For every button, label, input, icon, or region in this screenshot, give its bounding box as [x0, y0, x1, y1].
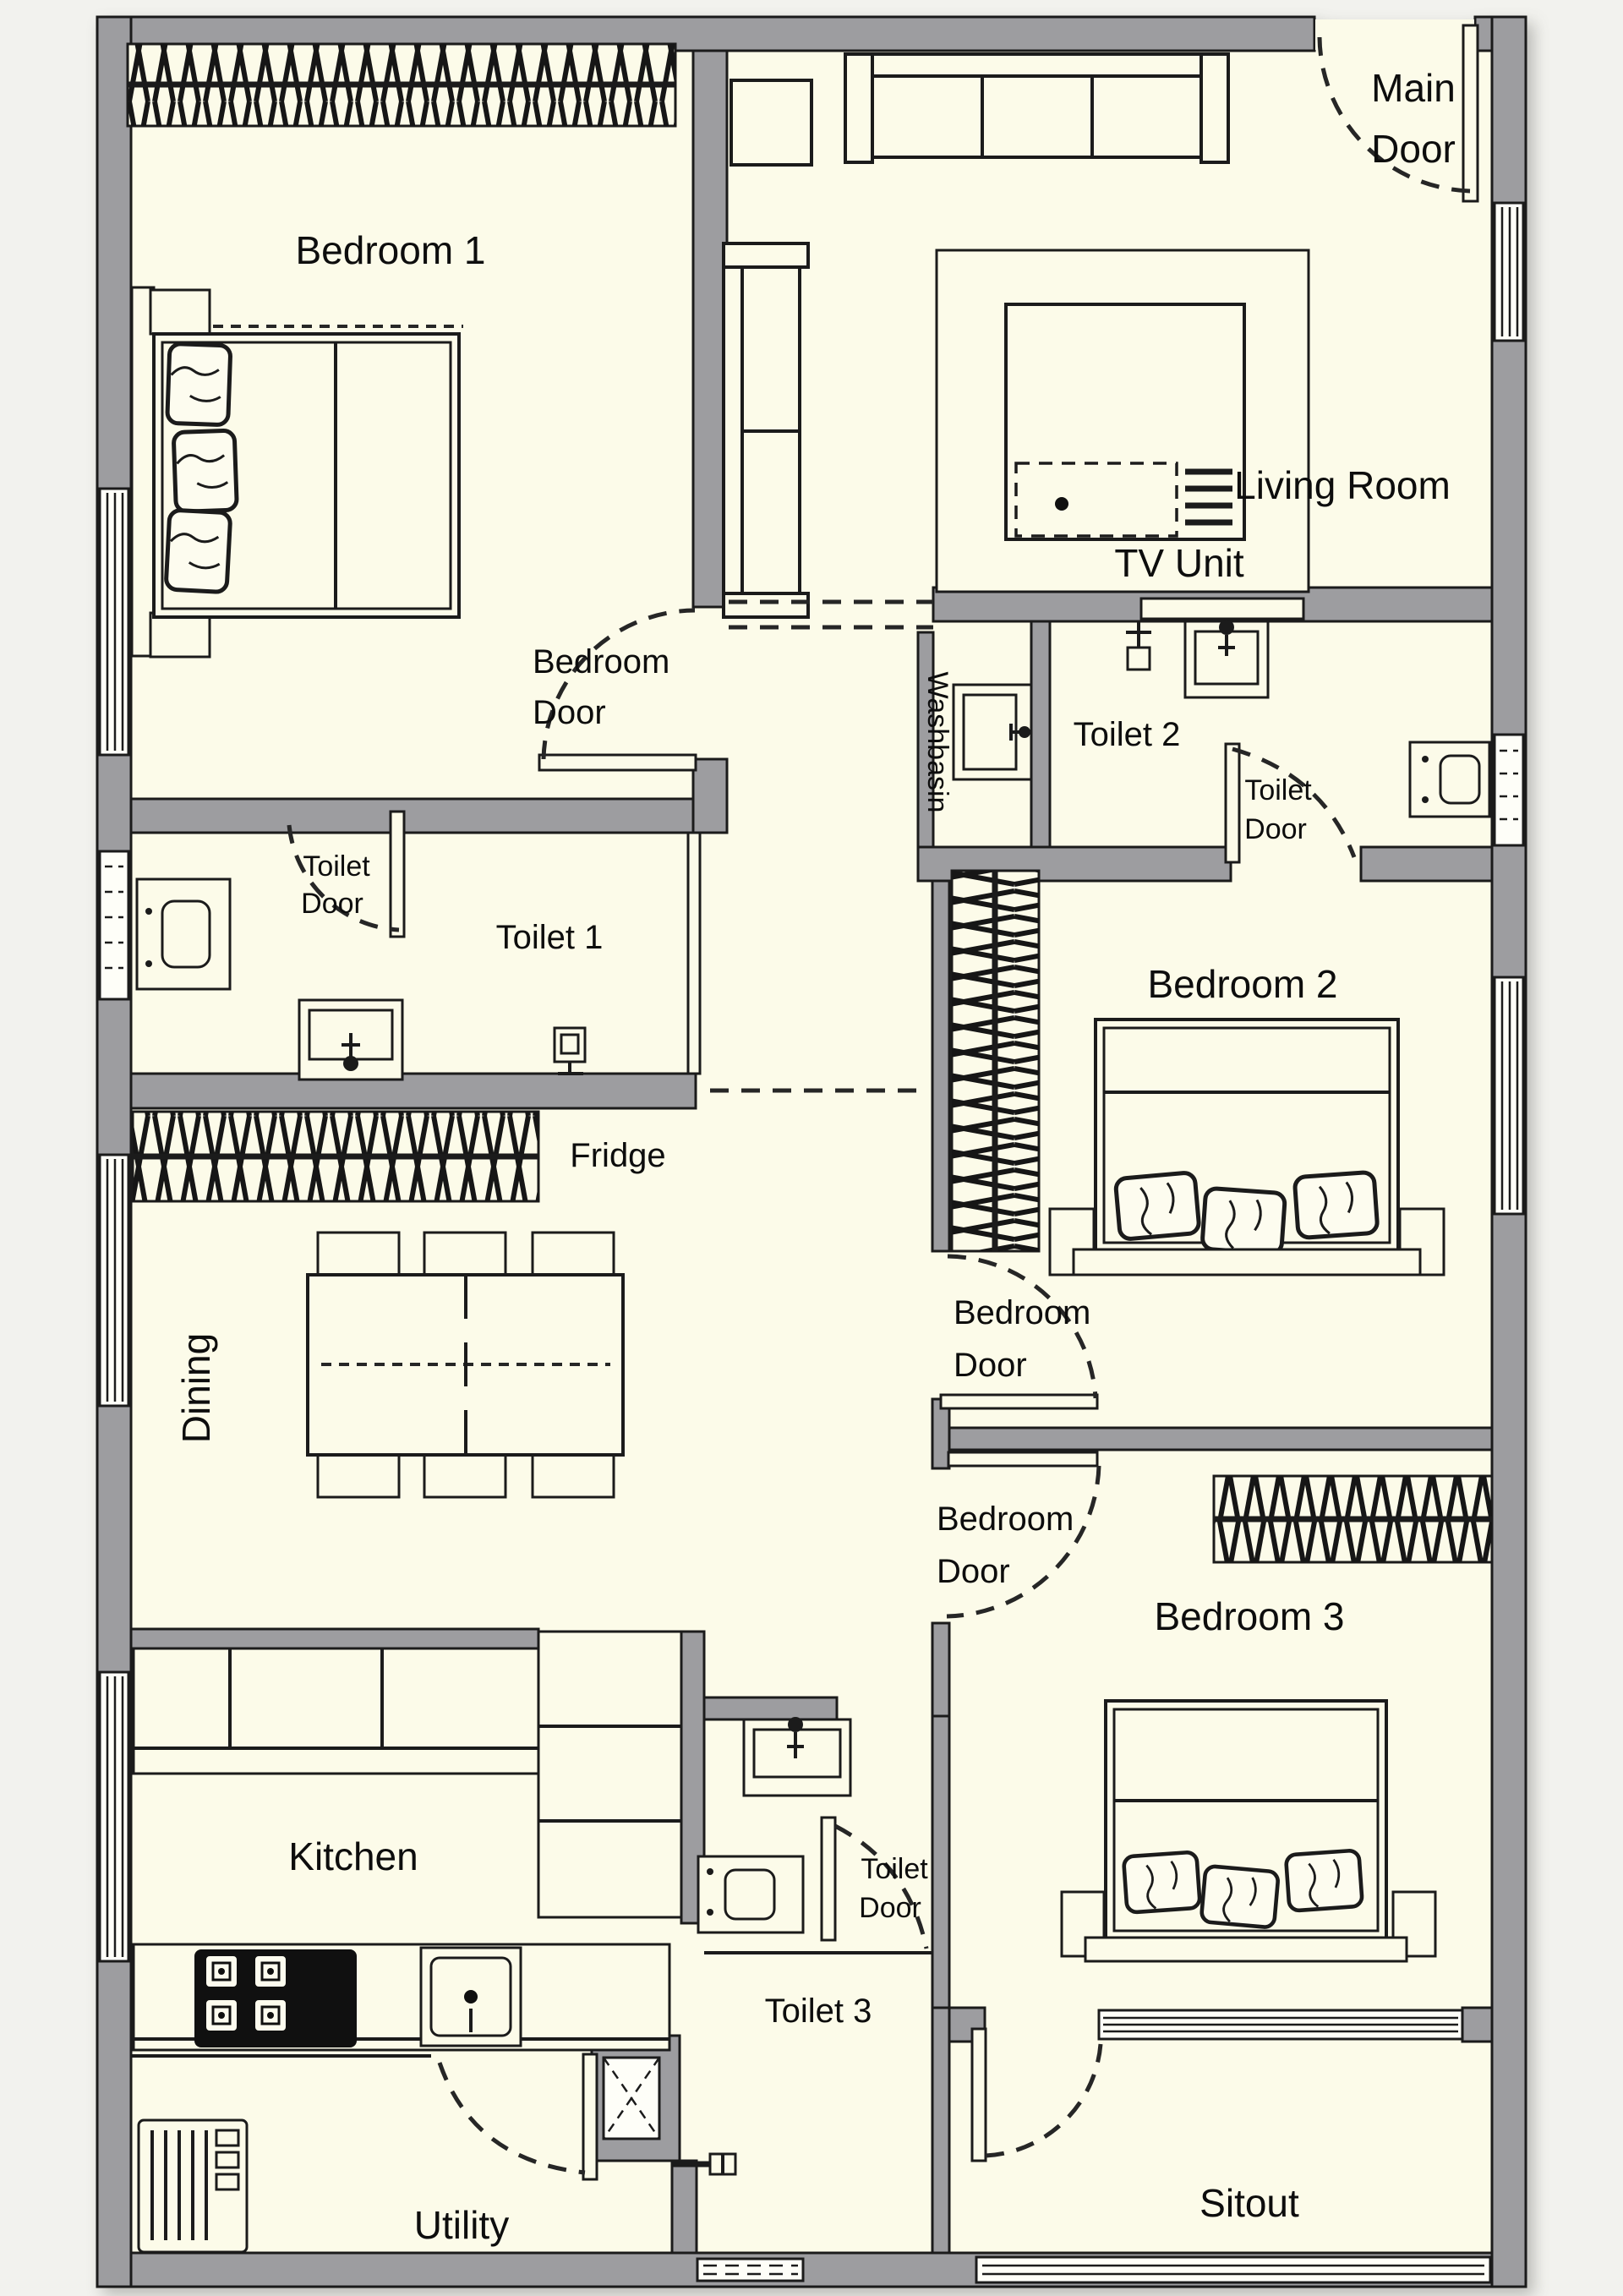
label-toilet2: Toilet 2: [1074, 716, 1181, 753]
window-kitchen-left: [100, 1672, 128, 1961]
kitchen-stove: [194, 1949, 357, 2047]
label-toilet3-door-1: Toilet: [861, 1853, 928, 1885]
bed-bedroom2: [1050, 1020, 1444, 1275]
label-utility: Utility: [414, 2203, 509, 2247]
label-dining: Dining: [174, 1333, 218, 1443]
washbasin-passage: [954, 685, 1031, 779]
label-toilet1-door-2: Door: [301, 888, 363, 920]
label-bedroom3-door-1: Bedroom: [937, 1501, 1074, 1538]
wardrobe-bedroom2: [952, 871, 1039, 1251]
wardrobe-bedroom1: [128, 44, 675, 126]
louver-toilet1-left: [100, 851, 128, 999]
label-toilet2-door-1: Toilet: [1244, 774, 1312, 806]
wc-toilet2: [1410, 742, 1489, 817]
tv-unit: [1141, 599, 1303, 619]
label-bedroom3-door-2: Door: [937, 1553, 1010, 1590]
label-tv-unit: TV Unit: [1114, 541, 1244, 585]
side-table-living: [731, 80, 811, 165]
floor-plan-svg: Bedroom 1 Main Door Living Room TV Unit …: [0, 0, 1623, 2296]
wardrobe-dining: [133, 1112, 538, 1201]
label-main-door-1: Main: [1371, 66, 1456, 110]
label-toilet3: Toilet 3: [765, 1993, 872, 2030]
washbasin-toilet3: [744, 1717, 850, 1796]
washing-machine: [139, 2120, 247, 2252]
wc-toilet3: [698, 1856, 803, 1932]
window-dining-left: [100, 1155, 128, 1406]
label-toilet2-door-2: Door: [1244, 813, 1307, 845]
label-bedroom2-door-1: Bedroom: [954, 1294, 1090, 1331]
kitchen-cabinet: [538, 1632, 681, 1917]
louver-vent-bottom: [697, 2259, 803, 2281]
label-washbasin: Washbasin: [921, 672, 954, 813]
window-bedroom2-right: [1495, 977, 1523, 1214]
label-bedroom1: Bedroom 1: [295, 228, 485, 272]
bed-bedroom1: [132, 287, 463, 657]
washbasin-toilet2: [1185, 620, 1268, 697]
label-sitout: Sitout: [1199, 2181, 1299, 2225]
louver-toilet2-right: [1495, 735, 1523, 845]
kitchen-sink: [421, 1948, 521, 2046]
label-bedroom1-door-1: Bedroom: [533, 643, 669, 681]
railing-sitout: [976, 2257, 1490, 2282]
label-kitchen: Kitchen: [288, 1834, 418, 1878]
window-living-right: [1495, 203, 1523, 341]
label-fridge: Fridge: [570, 1137, 665, 1174]
bed-bedroom3: [1062, 1701, 1435, 1961]
wc-toilet1: [137, 879, 230, 989]
label-bedroom2-door-2: Door: [954, 1347, 1027, 1384]
washbasin-toilet1: [299, 1000, 402, 1080]
window-bedroom1-left: [100, 489, 128, 755]
label-living-room: Living Room: [1234, 463, 1451, 507]
duct-shaft: [604, 2058, 659, 2139]
label-toilet3-door-2: Door: [859, 1892, 921, 1924]
label-toilet1: Toilet 1: [496, 919, 604, 956]
label-toilet1-door-1: Toilet: [303, 850, 370, 883]
kitchen-counter-top: [134, 1648, 538, 1774]
sofa-two-seater: [724, 243, 808, 617]
wardrobe-bedroom3: [1214, 1476, 1492, 1562]
label-bedroom3: Bedroom 3: [1154, 1594, 1344, 1638]
window-bedroom3-sitout: [1099, 2010, 1462, 2039]
dining-table: [308, 1275, 623, 1455]
label-main-door-2: Door: [1371, 127, 1456, 171]
label-bedroom1-door-2: Door: [533, 694, 606, 731]
floor-plan-page: Bedroom 1 Main Door Living Room TV Unit …: [0, 0, 1623, 2296]
sofa-three-seater: [845, 54, 1228, 162]
label-bedroom2: Bedroom 2: [1147, 962, 1337, 1006]
